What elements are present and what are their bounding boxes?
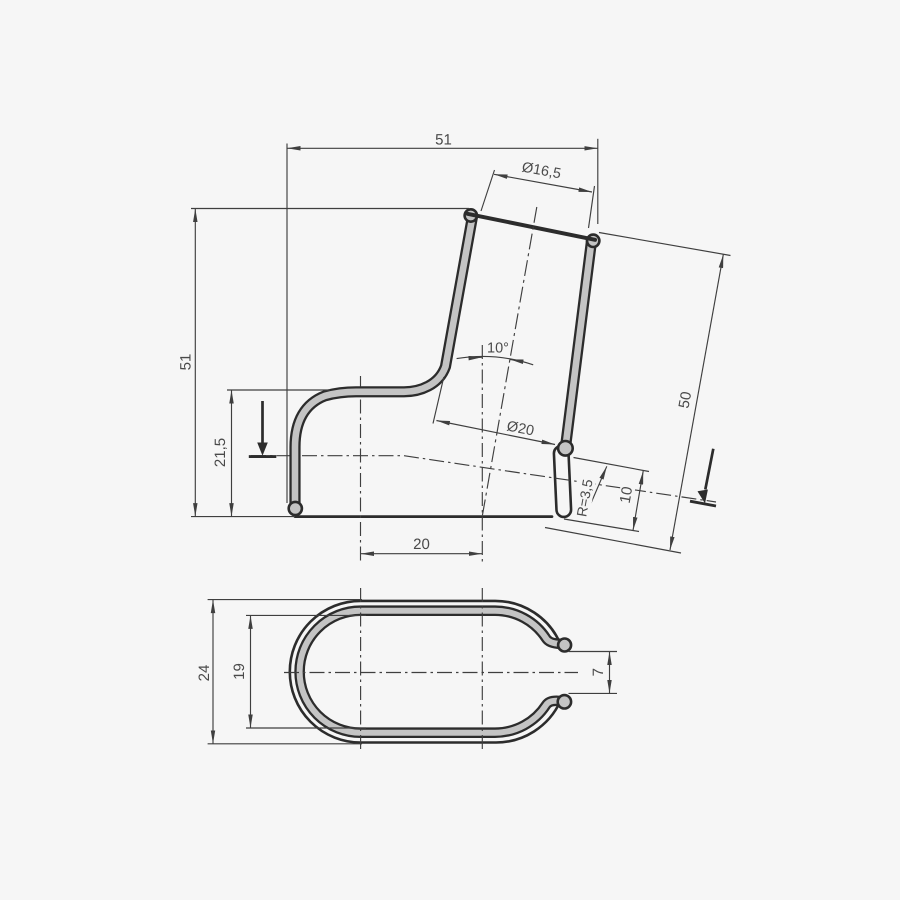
svg-text:20: 20 [413, 536, 430, 553]
svg-text:24: 24 [196, 665, 213, 682]
svg-text:51: 51 [178, 354, 195, 371]
svg-text:10: 10 [617, 485, 637, 504]
svg-text:10°: 10° [487, 341, 509, 357]
svg-text:51: 51 [435, 131, 452, 148]
svg-text:19: 19 [231, 663, 248, 680]
svg-text:7: 7 [590, 668, 607, 676]
svg-text:50: 50 [676, 390, 696, 409]
svg-text:21,5: 21,5 [212, 438, 229, 467]
